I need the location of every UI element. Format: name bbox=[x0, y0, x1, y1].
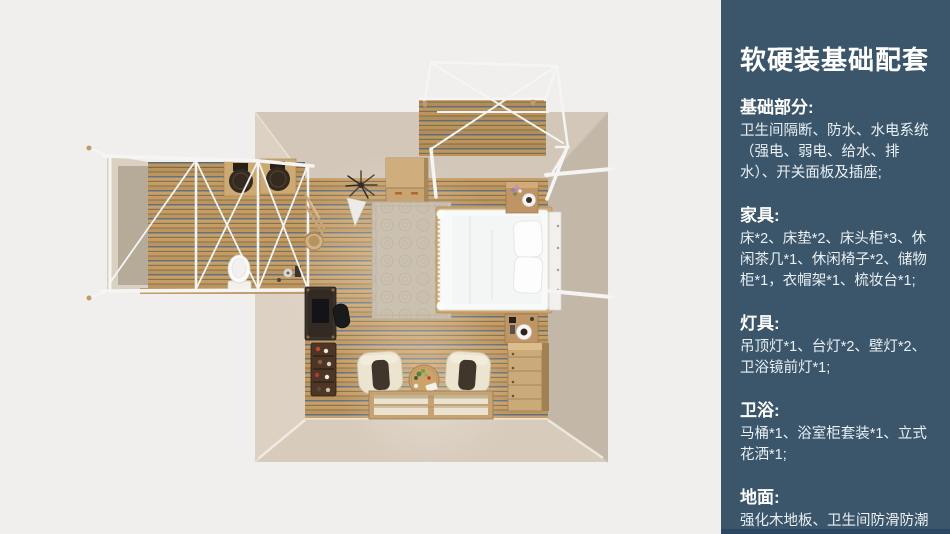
sidebar-title: 软硬装基础配套 bbox=[740, 44, 935, 76]
info-sidebar: 软硬装基础配套 基础部分: 卫生间隔断、防水、水电系统（强电、弱电、给水、排水）… bbox=[721, 0, 950, 534]
armchair-left bbox=[357, 351, 404, 395]
basket bbox=[305, 232, 323, 250]
section-bathroom: 卫浴: 马桶*1、浴室柜套装*1、立式花洒*1; bbox=[740, 401, 935, 466]
nightstand-top bbox=[506, 182, 538, 213]
section-lighting-heading: 灯具: bbox=[740, 314, 935, 334]
balcony-deck bbox=[419, 99, 549, 156]
section-furniture-body: 床*2、床垫*2、床头柜*3、休闲茶几*1、休闲椅子*2、储物柜*1，衣帽架*1… bbox=[740, 229, 935, 292]
section-bathroom-body: 马桶*1、浴室柜套装*1、立式花洒*1; bbox=[740, 424, 935, 466]
section-basics-body: 卫生间隔断、防水、水电系统（强电、弱电、给水、排水）、开关面板及插座; bbox=[740, 121, 935, 184]
dresser bbox=[508, 343, 549, 411]
storage-cabinet bbox=[386, 158, 428, 203]
nightstand-bottom bbox=[505, 314, 538, 343]
desk bbox=[305, 287, 336, 340]
armchair-right bbox=[445, 351, 492, 395]
sink-basin-left bbox=[229, 169, 253, 193]
section-basics: 基础部分: 卫生间隔断、防水、水电系统（强电、弱电、给水、排水）、开关面板及插座… bbox=[740, 98, 935, 184]
sidebar-bottom-strip bbox=[721, 529, 950, 534]
tea-table bbox=[409, 365, 439, 395]
section-furniture-heading: 家具: bbox=[740, 206, 935, 226]
sink-basin-right bbox=[266, 167, 290, 191]
bed bbox=[436, 207, 552, 313]
section-lighting: 灯具: 吊顶灯*1、台灯*2、壁灯*2、卫浴镜前灯*1; bbox=[740, 314, 935, 379]
section-lighting-body: 吊顶灯*1、台灯*2、壁灯*2、卫浴镜前灯*1; bbox=[740, 337, 935, 379]
toilet bbox=[228, 255, 251, 290]
section-furniture: 家具: 床*2、床垫*2、床头柜*3、休闲茶几*1、休闲椅子*2、储物柜*1，衣… bbox=[740, 206, 935, 292]
section-flooring: 地面: 强化木地板、卫生间防滑防潮石塑板; bbox=[740, 488, 935, 534]
section-basics-heading: 基础部分: bbox=[740, 98, 935, 118]
slide: 软硬装基础配套 基础部分: 卫生间隔断、防水、水电系统（强电、弱电、给水、排水）… bbox=[0, 0, 950, 534]
section-flooring-heading: 地面: bbox=[740, 488, 935, 508]
wall-panel bbox=[549, 212, 561, 310]
floor-mats bbox=[369, 391, 493, 419]
section-bathroom-heading: 卫浴: bbox=[740, 401, 935, 421]
shoe-rack bbox=[311, 343, 336, 396]
floorplan-render bbox=[0, 0, 721, 534]
